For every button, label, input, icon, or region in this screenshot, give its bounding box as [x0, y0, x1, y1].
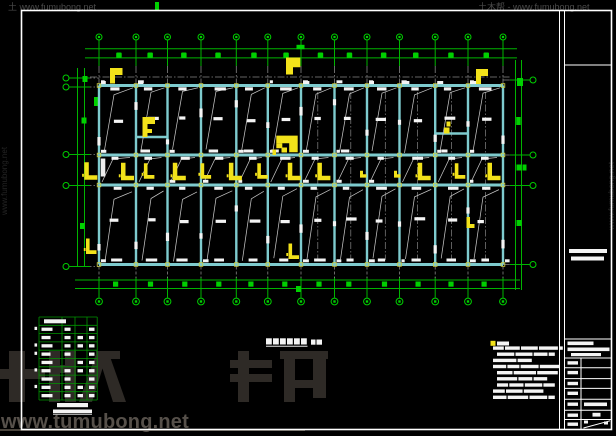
svg-text:www.fumubong.net: www.fumubong.net — [0, 146, 9, 216]
